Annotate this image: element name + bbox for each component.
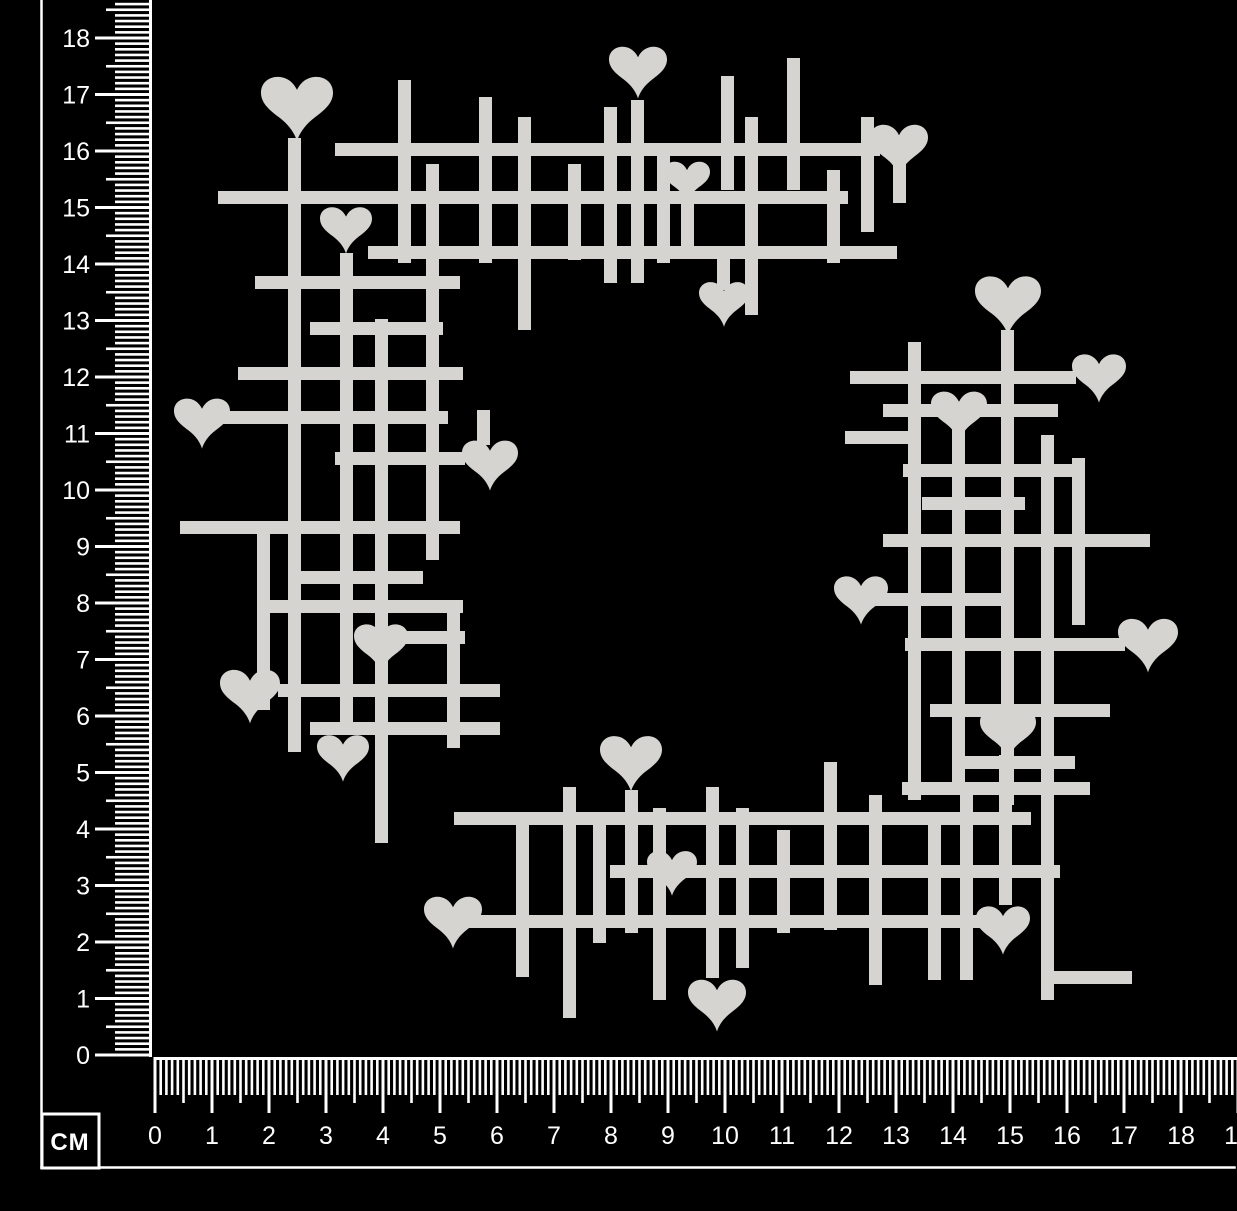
mm-tick (115, 822, 152, 825)
mm-tick (849, 1057, 852, 1095)
mm-tick (115, 924, 152, 927)
product-scan: 0123456789101112131415161718 01234567891… (0, 0, 1237, 1211)
mm-tick (239, 1057, 242, 1103)
mm-tick (690, 1057, 693, 1095)
mm-tick (313, 1057, 316, 1095)
cm-tick-label: 16 (1053, 1122, 1081, 1150)
mm-tick (115, 76, 152, 79)
mm-tick (106, 573, 152, 576)
mm-tick (115, 975, 152, 978)
mm-tick (433, 1057, 436, 1095)
mm-tick (279, 1057, 282, 1095)
mm-tick (115, 116, 152, 119)
mm-tick (650, 1057, 653, 1095)
mm-tick (1197, 1057, 1200, 1095)
mm-tick (115, 483, 152, 486)
mm-tick (564, 1057, 567, 1095)
mm-tick (115, 749, 152, 752)
mm-tick (115, 1042, 152, 1045)
mm-tick (115, 596, 152, 599)
mm-tick (883, 1057, 886, 1095)
mm-tick (387, 1057, 390, 1095)
mm-tick (115, 698, 152, 701)
mm-tick (115, 720, 152, 723)
mm-tick (234, 1057, 237, 1095)
cm-tick-label: 1 (76, 986, 90, 1014)
grid-bar-horizontal (462, 915, 980, 928)
grid-bar-horizontal (238, 367, 463, 380)
mm-tick (712, 1057, 715, 1095)
mm-tick (115, 172, 152, 175)
mm-tick (115, 257, 152, 260)
cm-tick (154, 1057, 157, 1113)
mm-tick (115, 201, 152, 204)
mm-tick (644, 1057, 647, 1095)
mm-tick (775, 1057, 778, 1095)
mm-tick (115, 540, 152, 543)
grid-bar-vertical (928, 818, 941, 980)
mm-tick (1014, 1057, 1017, 1095)
cm-tick (95, 941, 152, 944)
mm-tick (519, 1057, 522, 1095)
mm-tick (115, 223, 152, 226)
mm-tick (115, 579, 152, 582)
mm-tick (1003, 1057, 1006, 1095)
mm-tick (115, 619, 152, 622)
cm-tick (439, 1057, 442, 1113)
mm-tick (1163, 1057, 1166, 1095)
mm-tick (115, 415, 152, 418)
mm-tick (115, 336, 152, 339)
cm-tick-label: 13 (882, 1122, 910, 1150)
mm-tick (115, 218, 152, 221)
grid-bar-vertical (518, 117, 531, 330)
mm-tick (115, 726, 152, 729)
mm-tick (353, 1057, 356, 1103)
grid-bar-vertical (516, 818, 529, 977)
mm-tick (115, 873, 152, 876)
cm-tick (95, 37, 152, 40)
mm-tick (115, 427, 152, 430)
mm-tick (115, 71, 152, 74)
grid-bar-vertical (681, 204, 694, 250)
grid-bar-vertical (479, 97, 492, 263)
mm-tick (106, 630, 152, 633)
mm-tick (115, 314, 152, 317)
mm-tick (115, 788, 152, 791)
mm-tick (992, 1057, 995, 1095)
mm-tick (997, 1057, 1000, 1095)
grid-bar-horizontal (335, 452, 465, 465)
mm-tick (115, 760, 152, 763)
grid-bar-horizontal (905, 638, 1125, 651)
scan-canvas: 0123456789101112131415161718 01234567891… (0, 0, 1237, 1211)
cm-tick (325, 1057, 328, 1113)
cm-tick-label: 0 (76, 1042, 90, 1070)
mm-tick (115, 251, 152, 254)
mm-tick (115, 444, 152, 447)
grid-bar-horizontal (255, 276, 460, 289)
mm-tick (536, 1057, 539, 1095)
mm-tick (935, 1057, 938, 1095)
mm-tick (115, 387, 152, 390)
cm-tick-label: 11 (769, 1122, 795, 1150)
cm-tick-label: 12 (62, 364, 90, 392)
grid-bar-vertical (563, 787, 576, 1018)
mm-tick (115, 20, 152, 23)
cm-tick-label: 4 (76, 816, 90, 844)
mm-tick (804, 1057, 807, 1095)
mm-tick (115, 82, 152, 85)
mm-tick (115, 879, 152, 882)
cm-tick-label: 1 (205, 1122, 219, 1150)
grid-bar-vertical (631, 100, 644, 283)
mm-tick (462, 1057, 465, 1095)
cm-tick-label: 2 (262, 1122, 276, 1150)
mm-tick (115, 896, 152, 899)
mm-tick (1134, 1057, 1137, 1095)
mm-tick (106, 799, 152, 802)
cm-tick (553, 1057, 556, 1113)
cm-tick (95, 432, 152, 435)
mm-tick (115, 449, 152, 452)
mm-tick (878, 1057, 881, 1095)
mm-tick (604, 1057, 607, 1095)
mm-tick (115, 302, 152, 305)
mm-tick (405, 1057, 408, 1095)
mm-tick (308, 1057, 311, 1095)
mm-tick (115, 692, 152, 695)
mm-tick (1037, 1057, 1040, 1103)
mm-tick (707, 1057, 710, 1095)
mm-tick (370, 1057, 373, 1095)
mm-tick (222, 1057, 225, 1095)
cm-tick-label: 10 (62, 477, 90, 505)
mm-tick (1231, 1057, 1234, 1095)
cm-tick-label: 18 (62, 25, 90, 53)
grid-bar-horizontal (957, 756, 1075, 769)
cm-tick (1009, 1057, 1012, 1113)
mm-tick (115, 754, 152, 757)
mm-tick (969, 1057, 972, 1095)
mm-tick (764, 1057, 767, 1095)
mm-tick (115, 1048, 152, 1051)
mm-tick (752, 1057, 755, 1103)
mm-tick (929, 1057, 932, 1095)
mm-tick (1043, 1057, 1046, 1095)
mm-tick (115, 127, 152, 130)
mm-tick (815, 1057, 818, 1095)
grid-bar-horizontal (845, 431, 912, 444)
mm-tick (1060, 1057, 1063, 1095)
mm-tick (115, 1031, 152, 1034)
mm-tick (115, 280, 152, 283)
mm-tick (115, 845, 152, 848)
mm-tick (115, 325, 152, 328)
mm-tick (106, 234, 152, 237)
mm-tick (115, 506, 152, 509)
mm-tick (115, 438, 152, 441)
mm-tick (115, 935, 152, 938)
mm-tick (695, 1057, 698, 1103)
mm-tick (1077, 1057, 1080, 1095)
mm-tick (159, 1057, 162, 1095)
mm-tick (115, 636, 152, 639)
mm-tick (106, 460, 152, 463)
cm-tick-label: 3 (76, 873, 90, 901)
mm-tick (106, 404, 152, 407)
mm-tick (701, 1057, 704, 1095)
mm-tick (359, 1057, 362, 1095)
mm-tick (115, 653, 152, 656)
mm-tick (376, 1057, 379, 1095)
left-border-line (40, 0, 43, 1169)
mm-tick (115, 641, 152, 644)
mm-tick (115, 946, 152, 949)
mm-tick (1185, 1057, 1188, 1095)
mm-tick (946, 1057, 949, 1095)
cm-tick (95, 263, 152, 266)
mm-tick (115, 167, 152, 170)
mm-tick (826, 1057, 829, 1095)
mm-tick (115, 986, 152, 989)
mm-tick (821, 1057, 824, 1095)
mm-tick (393, 1057, 396, 1095)
cm-tick (95, 602, 152, 605)
mm-tick (194, 1057, 197, 1095)
mm-tick (115, 647, 152, 650)
mm-tick (165, 1057, 168, 1095)
cm-tick-label: 16 (62, 138, 90, 166)
mm-tick (1020, 1057, 1023, 1095)
mm-tick (758, 1057, 761, 1095)
mm-tick (598, 1057, 601, 1095)
mm-tick (106, 178, 152, 181)
mm-tick (980, 1057, 983, 1103)
cm-tick (95, 658, 152, 661)
mm-tick (456, 1057, 459, 1095)
cm-tick (95, 150, 152, 153)
mm-tick (115, 297, 152, 300)
mm-tick (115, 477, 152, 480)
mm-tick (115, 110, 152, 113)
cm-tick (95, 715, 152, 718)
cm-tick-label: 17 (62, 82, 90, 110)
mm-tick (450, 1057, 453, 1095)
mm-tick (115, 398, 152, 401)
grid-bar-vertical (288, 138, 301, 752)
cm-tick (268, 1057, 271, 1113)
mm-tick (530, 1057, 533, 1095)
cm-tick (95, 545, 152, 548)
cm-tick-label: 11 (64, 421, 90, 449)
mm-tick (115, 794, 152, 797)
mm-tick (115, 184, 152, 187)
mm-tick (115, 455, 152, 458)
mm-tick (912, 1057, 915, 1095)
cm-tick-label: 14 (939, 1122, 967, 1150)
mm-tick (115, 155, 152, 158)
cm-tick (1066, 1057, 1069, 1113)
grid-bar-horizontal (922, 497, 1025, 510)
grid-bar-vertical (869, 795, 882, 985)
mm-tick (115, 833, 152, 836)
mm-tick (115, 161, 152, 164)
mm-tick (524, 1057, 527, 1103)
mm-tick (809, 1057, 812, 1103)
mm-tick (986, 1057, 989, 1095)
mm-tick (115, 523, 152, 526)
mm-tick (182, 1057, 185, 1103)
cm-tick (95, 93, 152, 96)
mm-tick (507, 1057, 510, 1095)
mm-tick (115, 133, 152, 136)
mm-tick (484, 1057, 487, 1095)
mm-tick (513, 1057, 516, 1095)
mm-tick (627, 1057, 630, 1095)
cm-tick (952, 1057, 955, 1113)
mm-tick (115, 268, 152, 271)
mm-tick (621, 1057, 624, 1095)
mm-tick (115, 54, 152, 57)
cm-tick (95, 376, 152, 379)
cm-tick (667, 1057, 670, 1113)
mm-tick (115, 1037, 152, 1040)
grid-bar-horizontal (1047, 971, 1132, 984)
mm-tick (115, 805, 152, 808)
mm-tick (188, 1057, 191, 1095)
mm-tick (900, 1057, 903, 1095)
mm-tick (115, 342, 152, 345)
mm-tick (798, 1057, 801, 1095)
mm-tick (115, 890, 152, 893)
mm-tick (115, 195, 152, 198)
mm-tick (115, 421, 152, 424)
mm-tick (866, 1057, 869, 1103)
mm-tick (115, 274, 152, 277)
cm-tick (95, 206, 152, 209)
mm-tick (115, 1020, 152, 1023)
mm-tick (1128, 1057, 1131, 1095)
mm-tick (1049, 1057, 1052, 1095)
mm-tick (399, 1057, 402, 1095)
mm-tick (115, 850, 152, 853)
grid-bar-horizontal (293, 571, 423, 584)
mm-tick (251, 1057, 254, 1095)
cm-tick (95, 997, 152, 1000)
mm-tick (199, 1057, 202, 1095)
mm-tick (115, 732, 152, 735)
mm-tick (115, 783, 152, 786)
grid-bar-horizontal (222, 411, 448, 424)
mm-tick (115, 766, 152, 769)
mm-tick (348, 1057, 351, 1095)
mm-tick (1140, 1057, 1143, 1095)
cm-tick (382, 1057, 385, 1113)
grid-bar-horizontal (310, 722, 500, 735)
mm-tick (115, 562, 152, 565)
mm-tick (365, 1057, 368, 1095)
mm-tick (115, 980, 152, 983)
mm-tick (1151, 1057, 1154, 1103)
mm-tick (1106, 1057, 1109, 1095)
mm-tick (106, 347, 152, 350)
grid-bar-vertical (952, 425, 965, 795)
mm-tick (661, 1057, 664, 1095)
cm-tick (95, 489, 152, 492)
mm-tick (115, 48, 152, 51)
mm-tick (115, 31, 152, 34)
mm-tick (216, 1057, 219, 1095)
mm-tick (115, 14, 152, 17)
mm-tick (115, 607, 152, 610)
mm-tick (1203, 1057, 1206, 1095)
grid-bar-horizontal (258, 600, 463, 613)
mm-tick (296, 1057, 299, 1103)
mm-tick (115, 59, 152, 62)
mm-tick (115, 353, 152, 356)
mm-tick (302, 1057, 305, 1095)
mm-tick (115, 907, 152, 910)
mm-tick (106, 743, 152, 746)
grid-bar-vertical (593, 818, 606, 943)
cm-tick-label: 7 (547, 1122, 561, 1150)
cm-tick-label: 10 (711, 1122, 739, 1150)
mm-tick (115, 670, 152, 673)
grid-bar-horizontal (883, 534, 1150, 547)
mm-tick (106, 856, 152, 859)
grid-bar-vertical (477, 410, 490, 445)
grid-bar-vertical (960, 795, 973, 980)
mm-tick (1157, 1057, 1160, 1095)
mm-tick (1220, 1057, 1223, 1095)
mm-tick (115, 229, 152, 232)
grid-bar-vertical (1041, 435, 1054, 1000)
cm-tick-label: 7 (76, 647, 90, 675)
mm-tick (115, 816, 152, 819)
mm-tick (115, 88, 152, 91)
mm-tick (444, 1057, 447, 1095)
cm-tick-label: 6 (76, 703, 90, 731)
mm-tick (115, 777, 152, 780)
mm-tick (115, 189, 152, 192)
mm-tick (106, 912, 152, 915)
mm-tick (262, 1057, 265, 1095)
cm-tick (1180, 1057, 1183, 1113)
mm-tick (342, 1057, 345, 1095)
mm-tick (581, 1057, 584, 1103)
cm-tick-label: 12 (825, 1122, 853, 1150)
mm-tick (957, 1057, 960, 1095)
grid-bar-horizontal (902, 782, 1090, 795)
mm-tick (115, 144, 152, 147)
mm-tick (115, 534, 152, 537)
mm-tick (256, 1057, 259, 1095)
mm-tick (741, 1057, 744, 1095)
mm-tick (115, 675, 152, 678)
mm-tick (570, 1057, 573, 1095)
cm-tick (610, 1057, 613, 1113)
mm-tick (832, 1057, 835, 1095)
cm-tick-label: 18 (1167, 1122, 1195, 1150)
mm-tick (115, 992, 152, 995)
grid-bar-horizontal (850, 371, 1076, 384)
grid-bar-vertical (999, 755, 1012, 905)
mm-tick (115, 364, 152, 367)
mm-tick (115, 963, 152, 966)
mm-tick (115, 811, 152, 814)
mm-tick (1174, 1057, 1177, 1095)
